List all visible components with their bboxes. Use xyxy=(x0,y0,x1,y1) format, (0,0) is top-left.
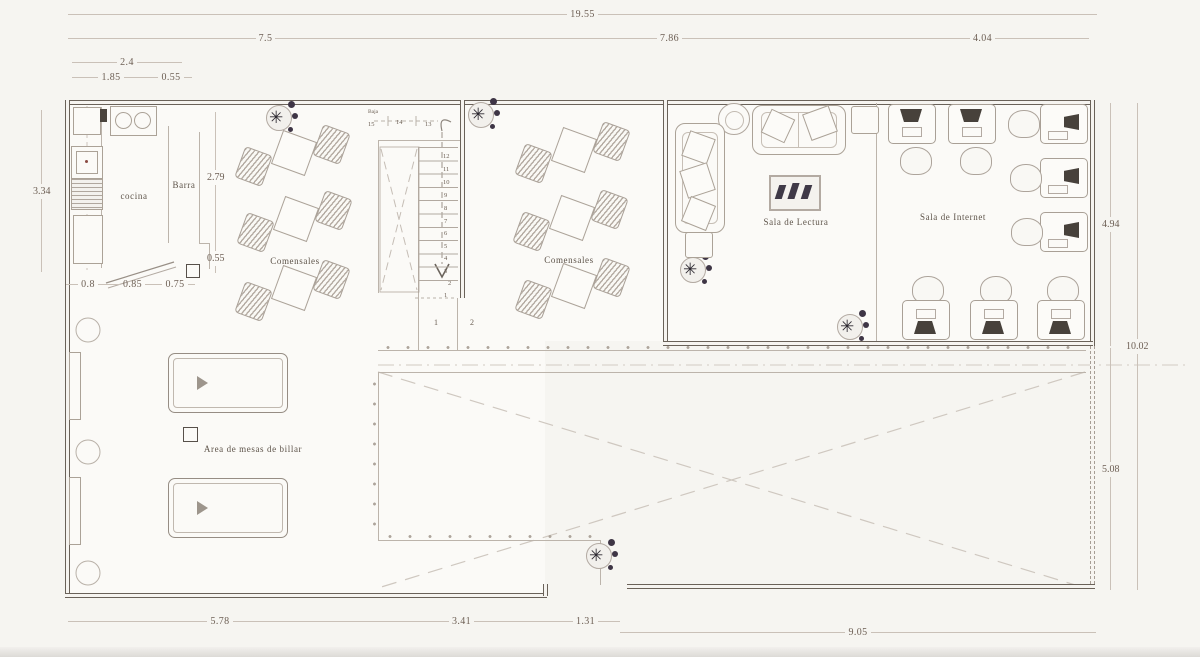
bar-counter xyxy=(199,132,200,243)
pool-table xyxy=(168,353,288,413)
stove-burner xyxy=(134,112,151,129)
floor-zone-number: 1 xyxy=(434,318,438,327)
dimension-right-upper: 4.94 xyxy=(1102,103,1120,346)
dining-table xyxy=(271,130,317,176)
monitor xyxy=(982,321,1004,334)
side-table xyxy=(685,232,713,258)
stair-step-number: 6 xyxy=(444,230,447,237)
side-table xyxy=(851,106,879,134)
stair-step-number: 7 xyxy=(444,218,447,225)
sink-drain xyxy=(85,160,88,163)
computer-desk xyxy=(970,300,1018,340)
refrigerator xyxy=(71,178,103,210)
stair-step-number: 12 xyxy=(443,153,450,160)
dining-chair xyxy=(234,146,273,187)
stair-left-edge xyxy=(378,140,379,293)
dining-chair xyxy=(314,190,353,231)
pool-table xyxy=(168,478,288,538)
keyboard xyxy=(1048,239,1068,248)
wall-bottom-left xyxy=(65,593,547,598)
room-label-reading: Sala de Lectura xyxy=(764,217,829,227)
dining-set xyxy=(517,117,629,189)
dining-table xyxy=(551,127,597,173)
dining-chair xyxy=(514,279,553,320)
stove xyxy=(110,106,157,136)
stair-direction-label: Baja xyxy=(368,109,378,115)
sofa xyxy=(675,123,725,233)
tub-chair-seat xyxy=(725,111,744,130)
wall-right-upper xyxy=(1090,100,1095,346)
keyboard xyxy=(916,309,936,319)
room-label-bar: Barra xyxy=(173,180,196,190)
column-post xyxy=(183,427,198,442)
dining-chair xyxy=(590,189,629,230)
desk-chair xyxy=(1011,218,1043,246)
wall-window xyxy=(69,477,81,545)
dimension-bar-lower: 0.55 xyxy=(207,243,225,273)
rug-pattern xyxy=(787,183,799,199)
rug-pattern xyxy=(801,185,813,199)
computer-desk xyxy=(902,300,950,340)
stair-step-number: 4 xyxy=(444,255,447,262)
room-label-dining-left: Comensales xyxy=(270,256,320,266)
stair-step-number: 8 xyxy=(444,205,447,212)
room-label-billiards: Area de mesas de billar xyxy=(204,444,302,454)
dimension-top-mid: 7.86 xyxy=(463,33,876,44)
stair-step-number: 5 xyxy=(444,243,447,250)
monitor xyxy=(900,109,922,122)
dining-chair xyxy=(514,143,553,184)
dining-chair xyxy=(592,257,631,298)
keyboard xyxy=(902,127,922,137)
desk-chair xyxy=(1008,110,1040,138)
dimension-sub-left: 1.85 xyxy=(72,72,150,83)
keyboard xyxy=(1051,309,1071,319)
stair-step-number: 11 xyxy=(443,166,449,173)
wall-right-lower xyxy=(1090,346,1095,584)
computer-desk xyxy=(1040,158,1088,198)
dining-chair xyxy=(234,281,273,322)
rug xyxy=(769,175,821,211)
dining-set xyxy=(515,185,627,257)
stair-step-number: 13 xyxy=(425,121,432,128)
dining-table xyxy=(551,263,597,309)
computer-desk xyxy=(1040,104,1088,144)
stair-treads xyxy=(418,147,458,293)
dimension-bar-height: 2.79 xyxy=(207,112,225,243)
dimension-bottom-1: 5.78 xyxy=(68,616,372,627)
stair-step-number: 1 xyxy=(444,292,447,299)
dimension-kitchen-3: 0.75 xyxy=(155,279,195,290)
wall-stairwell xyxy=(460,100,465,298)
ball-rack xyxy=(197,501,208,515)
dimension-bottom-right: 9.05 xyxy=(620,627,1096,638)
interior-fill-lower-left xyxy=(68,341,545,593)
dining-chair xyxy=(236,212,275,253)
wall-bottom-right xyxy=(627,584,1095,589)
stair-landing-edge xyxy=(378,140,460,141)
terrace-edge-bottom xyxy=(378,540,601,541)
dimension-right-lower: 5.08 xyxy=(1102,348,1120,590)
desk-chair xyxy=(1010,164,1042,192)
wall-window xyxy=(69,352,81,420)
railing-posts xyxy=(378,345,1086,350)
kitchen-wall xyxy=(168,126,169,243)
room-label-kitchen: cocina xyxy=(120,191,147,201)
plant-icon: ✳ xyxy=(586,543,612,569)
dimension-top-right: 4.04 xyxy=(876,33,1089,44)
railing-line xyxy=(378,350,1086,351)
desk-chair xyxy=(900,147,932,175)
dimension-entrance: 1.31 xyxy=(551,616,620,627)
monitor xyxy=(1064,168,1079,184)
stair-step-number: 15 xyxy=(368,121,375,128)
sofa-divider xyxy=(798,112,799,148)
sink xyxy=(71,146,103,179)
room-label-dining-center: Comensales xyxy=(544,255,594,265)
plant-icon: ✳ xyxy=(680,257,706,283)
computer-desk xyxy=(888,104,936,144)
floor-zone-number: 2 xyxy=(470,318,474,327)
photo-edge xyxy=(0,647,1200,657)
terrace-edge-top xyxy=(378,372,1086,373)
dimension-right-total: 10.02 xyxy=(1126,103,1149,590)
dimension-top-total: 19.55 xyxy=(68,9,1097,20)
plant-icon: ✳ xyxy=(837,314,863,340)
dining-table xyxy=(271,265,317,311)
dimension-bottom-2: 3.41 xyxy=(372,616,551,627)
keyboard xyxy=(1048,185,1068,194)
stove-burner xyxy=(115,112,132,129)
dining-chair xyxy=(512,211,551,252)
terrace-edge-left xyxy=(378,372,379,540)
rug-pattern xyxy=(775,185,787,199)
dimension-kitchen-2: 0.85 xyxy=(110,279,155,290)
keyboard xyxy=(1048,131,1068,140)
ball-rack xyxy=(197,376,208,390)
keyboard xyxy=(984,309,1004,319)
computer-desk xyxy=(1040,212,1088,252)
dimension-kitchen-1: 0.8 xyxy=(66,279,110,290)
dining-table xyxy=(273,196,319,242)
stair-step-number: 3 xyxy=(444,268,447,275)
reading-internet-divider xyxy=(876,103,877,341)
dimension-sub-right: 0.55 xyxy=(150,72,192,83)
plant-icon: ✳ xyxy=(266,105,292,131)
dimension-top-left: 7.5 xyxy=(68,33,463,44)
monitor xyxy=(1064,114,1079,130)
monitor xyxy=(1049,321,1071,334)
wall-top xyxy=(65,100,1095,105)
column-post xyxy=(186,264,200,278)
monitor xyxy=(914,321,936,334)
monitor xyxy=(1064,222,1079,238)
under-stair-line xyxy=(418,293,419,350)
under-stair-line xyxy=(457,298,458,350)
floor-plan-canvas: Baja 15 14 13 12 11 10 9 8 7 6 5 4 3 2 1… xyxy=(0,0,1200,657)
dining-set xyxy=(237,120,349,192)
dining-chair xyxy=(312,124,351,165)
keyboard xyxy=(962,127,982,137)
wall-dining-reading-divider xyxy=(663,100,668,341)
stair-step-number: 9 xyxy=(444,192,447,199)
computer-desk xyxy=(948,104,996,144)
computer-desk xyxy=(1037,300,1085,340)
terrace-posts-bottom xyxy=(380,534,600,539)
dining-set xyxy=(239,186,351,258)
stair-step-number: 2 xyxy=(448,280,451,287)
stair-step-number: 10 xyxy=(443,179,450,186)
monitor xyxy=(960,109,982,122)
kitchen-cabinet xyxy=(73,107,101,135)
plant-icon: ✳ xyxy=(468,102,494,128)
wall-entrance-stub xyxy=(543,584,548,596)
sofa xyxy=(752,105,846,155)
dining-chair xyxy=(592,121,631,162)
kitchen-panel xyxy=(100,109,107,122)
dining-table xyxy=(549,195,595,241)
room-label-internet: Sala de Internet xyxy=(920,212,986,222)
desk-chair xyxy=(960,147,992,175)
dimension-sub-total: 2.4 xyxy=(72,57,182,68)
dimension-left-height: 3.34 xyxy=(33,110,51,272)
stair-step-number: 14 xyxy=(396,119,403,126)
terrace-posts-left xyxy=(372,374,377,538)
kitchen-cabinet xyxy=(73,215,103,264)
